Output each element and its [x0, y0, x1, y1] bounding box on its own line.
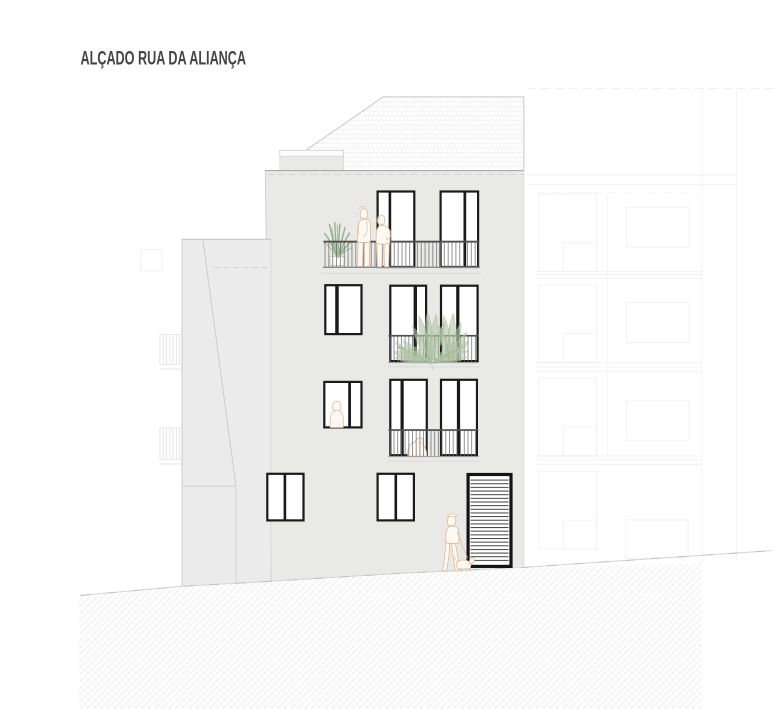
svg-text:ALÇADO RUA DA ALIANÇA: ALÇADO RUA DA ALIANÇA [81, 48, 247, 69]
